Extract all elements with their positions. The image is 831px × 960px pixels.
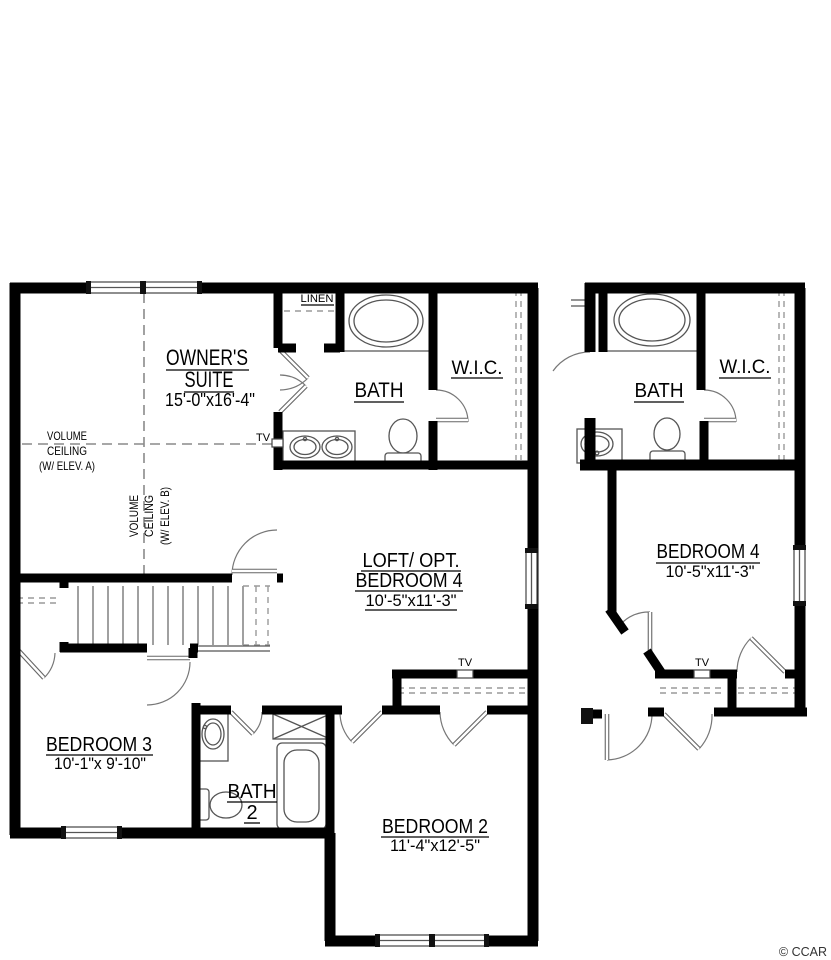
hall-opening-door [340,712,382,742]
bedroom2-window [375,934,489,947]
bath-label: BATH [635,380,684,402]
volume-ceiling-a-line2: CEILING [47,444,87,458]
bath2-label-line2: 2 [246,802,257,824]
owners-suite-label-line2: SUITE [185,367,234,392]
hall-closet-rod-dashed [17,598,61,603]
hall-closet-door [19,651,55,678]
bedroom2-label: BEDROOM 2 [382,816,488,838]
owners-suite-door [232,530,277,575]
wic-door [704,390,736,422]
owners-bath-toilet [385,419,421,466]
wic-rod-dashed [516,290,521,460]
floor-plan-svg: OWNER'S SUITE 15'-0"x16'-4" VOLUME CEILI… [0,0,831,960]
ccar-watermark: © CCAR [779,945,827,959]
bath2-tub [277,743,326,829]
bath2-vanity [198,712,228,761]
loft-label-line1: LOFT/ OPT. [363,550,460,572]
loft-dims: 10'-5"x11'-3" [366,591,457,610]
wic-label: W.I.C. [720,357,771,378]
bath-tub [607,294,698,351]
volume-ceiling-a-line1: VOLUME [47,429,87,443]
volume-ceiling-b-line3: (W/ ELEV. B) [158,487,172,545]
bedroom4-tv-label: TV [695,657,710,669]
bedroom2-tv-niche [457,670,473,678]
left-plan: OWNER'S SUITE 15'-0"x16'-4" VOLUME CEILI… [10,281,538,947]
bedroom4-tv-niche [694,670,710,678]
bedroom3-label: BEDROOM 3 [46,734,152,756]
bedroom4-dims: 10'-5"x11'-3" [666,562,755,581]
bedroom3-door [147,658,190,705]
owners-bath-french-doors [280,350,308,412]
staircase [78,586,270,651]
windows [793,545,806,606]
owners-suite-tv-label: TV [256,432,271,444]
bedroom2-door [440,712,487,745]
floor-plan-page: OWNER'S SUITE 15'-0"x16'-4" VOLUME CEILI… [0,0,831,960]
wic-rod-dashed [779,290,784,460]
bedroom4-window [793,545,806,606]
bath-vanity [577,429,622,463]
wall-stub [581,708,593,724]
owners-suite-window [86,281,202,294]
dashed-lines [17,290,529,693]
loft-window [525,548,538,609]
interior-walls [583,283,807,714]
bedroom3-dims: 10'-1"x 9'-10" [54,754,146,773]
bedroom2-closet-rod-dashed [398,688,529,693]
bath2-shelf-box [273,714,330,739]
stair-treads [78,586,243,645]
bedroom3-window [61,826,122,839]
stair-rail [196,646,270,651]
right-plan: BATH W.I.C. BEDROOM 4 10'-5"x11'-3" TV [553,283,807,760]
owners-suite-tv-niche [272,439,283,447]
labels: BATH W.I.C. BEDROOM 4 10'-5"x11'-3" TV [635,357,771,669]
volume-ceiling-b-line1: VOLUME [127,495,141,537]
owners-bath-tub [340,295,431,351]
stair-treads-dashed [243,586,270,645]
linen-label: LINEN [301,293,334,305]
wic-label: W.I.C. [452,358,503,379]
bath-label: BATH [355,379,404,402]
wic-door [436,390,468,422]
volume-ceiling-a-line3: (W/ ELEV. A) [39,459,95,473]
owners-suite-dims: 15'-0"x16'-4" [165,390,255,410]
owners-bath-double-vanity [283,431,355,463]
bath-toilet [650,418,685,464]
bath-entry-door [553,352,590,371]
loft-label-line2: BEDROOM 4 [356,570,463,592]
volume-ceiling-b-line2: CEILING [142,495,156,537]
bedroom2-dims: 11'-4"x12'-5" [390,836,480,855]
bath2-door [231,712,262,734]
bedroom2-tv-label: TV [458,657,473,669]
bedroom4-label: BEDROOM 4 [657,541,760,563]
hall-door-left [607,714,652,760]
hall-door-right [664,714,712,749]
bath2-label-line1: BATH [228,781,277,803]
bedroom4-closet-door [737,638,785,672]
